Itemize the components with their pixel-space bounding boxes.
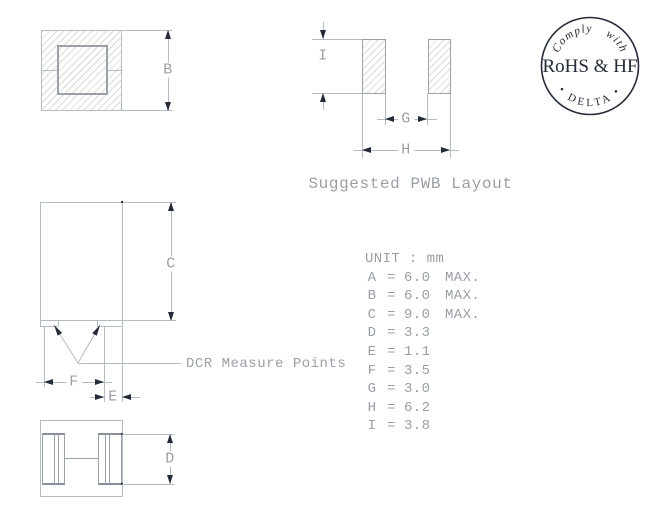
table-row: C=9.0MAX. bbox=[365, 306, 480, 325]
arrowhead-icon bbox=[165, 102, 171, 111]
dim-label-e: E bbox=[108, 390, 118, 405]
parting-line bbox=[107, 70, 122, 71]
arrowhead-icon bbox=[320, 30, 326, 39]
stamp-center-text: RoHS & HF bbox=[542, 56, 637, 77]
pwb-layout-caption: Suggested PWB Layout bbox=[308, 175, 513, 193]
table-row: A=6.0MAX. bbox=[365, 269, 480, 288]
extension-line bbox=[312, 39, 362, 40]
table-row: I=3.8 bbox=[365, 417, 480, 436]
terminal-fold-line bbox=[58, 434, 59, 484]
table-row: D=3.3 bbox=[365, 324, 480, 343]
dim-label-h: H bbox=[398, 143, 414, 158]
arrowhead-icon bbox=[44, 379, 53, 385]
dcr-measure-points-label: DCR Measure Points bbox=[186, 356, 346, 372]
arrowhead-icon bbox=[418, 116, 427, 122]
extension-line bbox=[104, 326, 105, 402]
pwb-pad-right bbox=[428, 39, 451, 94]
extension-line bbox=[122, 484, 174, 485]
body-outline-front bbox=[40, 202, 123, 321]
arrowhead-icon bbox=[385, 116, 394, 122]
arrowhead-icon bbox=[167, 434, 173, 443]
core-inner-outline bbox=[57, 45, 108, 95]
arrowhead-icon bbox=[168, 202, 174, 211]
extension-line bbox=[44, 326, 45, 387]
table-row: F=3.5 bbox=[365, 362, 480, 381]
wire-line bbox=[65, 458, 98, 459]
terminal-fold-line bbox=[105, 434, 106, 484]
arrowhead-icon bbox=[95, 394, 104, 400]
parting-line bbox=[42, 70, 57, 71]
dim-label-f: F bbox=[66, 375, 82, 390]
terminal-pad-right bbox=[98, 433, 122, 485]
dim-label-c: C bbox=[163, 257, 179, 272]
arrowhead-icon bbox=[441, 147, 450, 153]
arrowhead-icon bbox=[165, 30, 171, 39]
technical-drawing-page: B I G H Suggested PWB Layout bbox=[0, 0, 658, 520]
terminal-fold-line bbox=[109, 434, 110, 484]
stamp-arc-top-text: Comply with bbox=[550, 23, 629, 55]
extension-line bbox=[122, 321, 123, 402]
arrowhead-icon bbox=[167, 475, 173, 484]
dim-label-b: B bbox=[160, 63, 176, 78]
arrowhead-icon bbox=[320, 93, 326, 102]
terminal-fold-line bbox=[54, 434, 55, 484]
arrowhead-icon bbox=[95, 379, 104, 385]
dim-label-i: I bbox=[318, 49, 328, 64]
pwb-pad-left bbox=[362, 39, 386, 94]
table-row: H=6.2 bbox=[365, 399, 480, 418]
extension-line bbox=[450, 94, 451, 158]
unit-title: UNIT : mm bbox=[365, 250, 480, 269]
stamp-arc-bottom-text: • DELTA • bbox=[556, 84, 625, 109]
arrowhead-icon bbox=[122, 394, 131, 400]
leader-line bbox=[78, 363, 181, 364]
table-row: E=1.1 bbox=[365, 343, 480, 362]
dim-label-g: G bbox=[398, 112, 414, 127]
rohs-stamp: Comply with RoHS & HF • DELTA • bbox=[527, 5, 655, 133]
dimension-table: UNIT : mm A=6.0MAX. B=6.0MAX. C=9.0MAX. … bbox=[365, 250, 480, 436]
table-row: G=3.0 bbox=[365, 380, 480, 399]
table-row: B=6.0MAX. bbox=[365, 287, 480, 306]
arrowhead-icon bbox=[362, 147, 371, 153]
dim-label-d: D bbox=[162, 452, 178, 467]
extension-line bbox=[427, 94, 428, 125]
